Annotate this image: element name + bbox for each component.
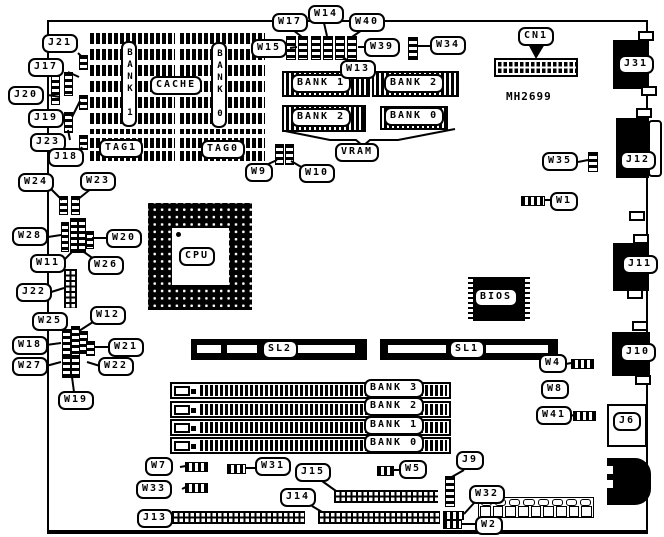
jumper-j23 xyxy=(64,112,73,133)
callout-w33: W33 xyxy=(136,480,172,499)
callout-w7: W7 xyxy=(145,457,173,476)
sl2-label: SL2 xyxy=(262,340,298,359)
callout-j20: J20 xyxy=(8,86,44,105)
jumper-j21 xyxy=(79,55,88,70)
simm-bank3-label: BANK 3 xyxy=(364,379,424,398)
header-j9 xyxy=(445,476,455,507)
callout-w8: W8 xyxy=(541,380,569,399)
keyboard-connector xyxy=(607,458,651,505)
jumper-w32 xyxy=(443,511,464,520)
connector-notch xyxy=(607,480,613,488)
simm-latch xyxy=(174,405,190,415)
jumper-j17 xyxy=(64,72,73,96)
jumper-w19 xyxy=(71,355,80,378)
vram-label: VRAM xyxy=(335,143,379,162)
simm-latch xyxy=(174,441,190,451)
callout-w24: W24 xyxy=(18,173,54,192)
edge-tab xyxy=(638,31,654,41)
cache-label: CACHE xyxy=(150,76,202,95)
cpu-label: CPU xyxy=(179,247,215,266)
callout-w12: W12 xyxy=(90,306,126,325)
callout-w19: W19 xyxy=(58,391,94,410)
connector-cn1 xyxy=(494,58,578,77)
callout-j21: J21 xyxy=(42,34,78,53)
callout-j9: J9 xyxy=(456,451,484,470)
edge-tab xyxy=(627,289,643,299)
jumper-w21 xyxy=(86,341,95,356)
callout-j19: J19 xyxy=(28,109,64,128)
jumper-w9 xyxy=(275,144,284,165)
callout-w10: W10 xyxy=(299,164,335,183)
slot-segment xyxy=(486,345,548,353)
callout-w2: W2 xyxy=(475,516,503,535)
callout-w28: W28 xyxy=(12,227,48,246)
callout-w26: W26 xyxy=(88,256,124,275)
callout-j10: J10 xyxy=(620,343,656,362)
callout-w25: W25 xyxy=(32,312,68,331)
jumper-w23 xyxy=(71,196,80,215)
pin1-marker-icon xyxy=(176,232,181,237)
jumper-w27 xyxy=(62,355,71,378)
callout-w4: W4 xyxy=(539,354,567,373)
callout-w32: W32 xyxy=(469,485,505,504)
jumper-w14 xyxy=(311,36,321,60)
jumper-w7 xyxy=(185,462,208,472)
simm-latch xyxy=(191,408,196,413)
jumper-w24 xyxy=(59,196,68,215)
jumper-w26 xyxy=(78,218,86,253)
callout-w31: W31 xyxy=(255,457,291,476)
callout-w5: W5 xyxy=(399,460,427,479)
jumper-w33 xyxy=(185,483,208,493)
callout-w14: W14 xyxy=(308,5,344,24)
callout-j31: J31 xyxy=(618,55,654,74)
tag0-label: TAG0 xyxy=(201,140,245,159)
callout-j14: J14 xyxy=(280,488,316,507)
jumper-w17 xyxy=(286,36,296,60)
jumper-w1 xyxy=(521,196,545,206)
jumper-w40 xyxy=(335,36,345,60)
header-j22 xyxy=(64,269,77,308)
tag1-label: TAG1 xyxy=(99,139,143,158)
simm-bank0-label: BANK 0 xyxy=(364,434,424,453)
jumper-w2 xyxy=(443,520,462,529)
callout-w11: W11 xyxy=(30,254,66,273)
jumper-j19 xyxy=(79,95,88,110)
jumper-w15 xyxy=(298,36,308,60)
simm-latch xyxy=(191,426,196,431)
cache-bank0-label: BANK 0 xyxy=(211,42,227,128)
simm-bank1-label: BANK 1 xyxy=(364,416,424,435)
bios-label: BIOS xyxy=(474,288,518,307)
edge-tab xyxy=(636,108,652,118)
callout-j17: J17 xyxy=(28,58,64,77)
simm-latch xyxy=(174,386,190,396)
callout-w15: W15 xyxy=(251,39,287,58)
callout-w41: W41 xyxy=(536,406,572,425)
jumper-w35 xyxy=(588,152,598,172)
jumper-w20 xyxy=(86,231,94,249)
jumper-w34 xyxy=(408,37,418,60)
callout-j6: J6 xyxy=(613,412,641,431)
jumper-j18 xyxy=(79,135,88,150)
edge-tab xyxy=(633,234,649,244)
model-number: MH2699 xyxy=(506,90,552,103)
callout-w20: W20 xyxy=(106,229,142,248)
sl1-label: SL1 xyxy=(449,340,485,359)
callout-j12: J12 xyxy=(620,151,656,170)
callout-j18: J18 xyxy=(48,148,84,167)
callout-w40: W40 xyxy=(349,13,385,32)
callout-w23: W23 xyxy=(80,172,116,191)
callout-j11: J11 xyxy=(622,255,658,274)
jumper-w13 xyxy=(323,36,333,60)
callout-w39: W39 xyxy=(364,38,400,57)
jumper-w4 xyxy=(571,359,594,369)
edge-tab xyxy=(629,211,645,221)
header-j15 xyxy=(334,490,438,503)
jumper-w5 xyxy=(377,466,394,476)
slot-segment xyxy=(197,345,221,353)
slot-segment xyxy=(388,345,446,353)
callout-j22: J22 xyxy=(16,283,52,302)
jumper-w25 xyxy=(62,329,71,356)
vram-bank0-label: BANK 0 xyxy=(384,107,444,126)
jumper-w11 xyxy=(70,218,78,253)
motherboard-diagram: BANK 1 BANK 0 CACHE TAG1 TAG0 BANK 1 BAN… xyxy=(0,0,664,537)
edge-tab xyxy=(632,321,648,331)
jumper-w28 xyxy=(61,222,69,252)
callout-w21: W21 xyxy=(108,338,144,357)
callout-w18: W18 xyxy=(12,336,48,355)
callout-w27: W27 xyxy=(12,357,48,376)
callout-w9: W9 xyxy=(245,163,273,182)
connector-notch xyxy=(607,466,613,474)
simm-latch xyxy=(191,389,196,394)
callout-j15: J15 xyxy=(295,463,331,482)
simm-latch xyxy=(174,423,190,433)
callout-w22: W22 xyxy=(98,357,134,376)
callout-j13: J13 xyxy=(137,509,173,528)
simm-latch xyxy=(191,444,196,449)
callout-w17: W17 xyxy=(272,13,308,32)
vram-bank2-top-label: BANK 2 xyxy=(384,74,444,93)
jumper-w41 xyxy=(573,411,596,421)
slot-segment xyxy=(227,345,257,353)
simm-bank2-label: BANK 2 xyxy=(364,397,424,416)
callout-w1: W1 xyxy=(550,192,578,211)
header-j14 xyxy=(318,511,440,524)
edge-tab xyxy=(641,86,657,96)
jumper-w31 xyxy=(227,464,246,474)
header-j13 xyxy=(172,511,305,524)
edge-tab xyxy=(635,375,651,385)
callout-w13: W13 xyxy=(340,60,376,79)
jumper-w10 xyxy=(285,144,294,165)
callout-cn1: CN1 xyxy=(518,27,554,46)
jumper-w39 xyxy=(347,36,357,60)
cache-bank1-label: BANK 1 xyxy=(121,41,137,127)
vram-bank2-bottom-label: BANK 2 xyxy=(291,108,351,127)
slot-segment xyxy=(293,345,355,353)
jumper-j20 xyxy=(51,73,60,105)
callout-w34: W34 xyxy=(430,36,466,55)
callout-w35: W35 xyxy=(542,152,578,171)
